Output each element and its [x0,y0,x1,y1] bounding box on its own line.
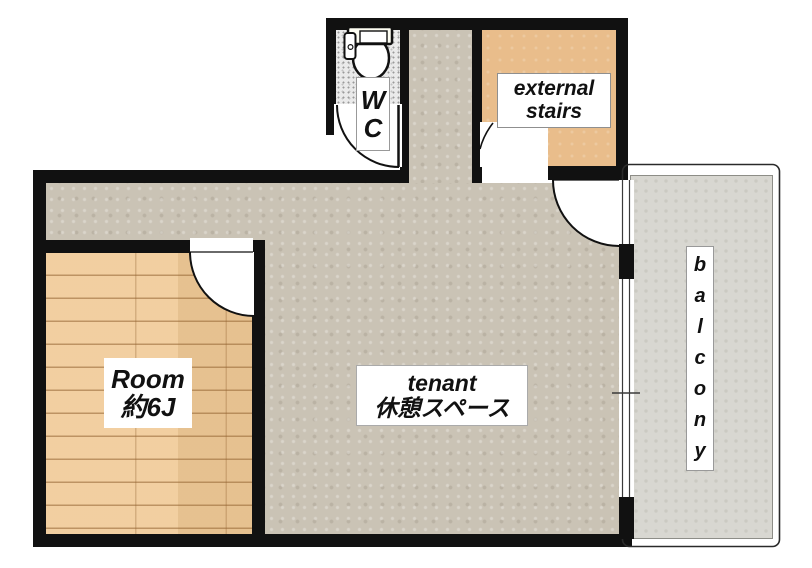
balcony-letter: a [694,281,705,312]
room-label-line2: 約6J [121,393,176,421]
tenant-label-line2: 休憩スペース [374,396,509,421]
toilet-icon [345,27,393,79]
balcony-letter: n [694,405,706,436]
room-door [190,238,254,316]
tenant-balcony-door [553,180,619,246]
wc-label: W C [356,77,390,151]
tenant-label-line1: tenant [408,371,477,396]
external-stairs-label: external stairs [497,73,611,128]
balcony-letter: o [694,374,706,405]
tenant-label: tenant 休憩スペース [356,365,528,426]
wc-label-line1: W [361,86,386,114]
room-label: Room 約6J [104,358,192,428]
floor-plan: W C external stairs Room 約6J tenant 休憩スペ… [0,0,812,568]
external-stairs-door [480,122,548,183]
external-stairs-label-line1: external [514,78,595,101]
external-stairs-label-line2: stairs [526,101,582,124]
wc-label-line2: C [364,114,383,142]
balcony-letter: y [694,436,705,467]
balcony-letter: l [697,312,703,343]
balcony-letter: b [694,250,706,281]
balcony-letter: c [694,343,705,374]
balcony-label: b a l c o n y [686,246,714,471]
room-label-line1: Room [111,365,185,393]
